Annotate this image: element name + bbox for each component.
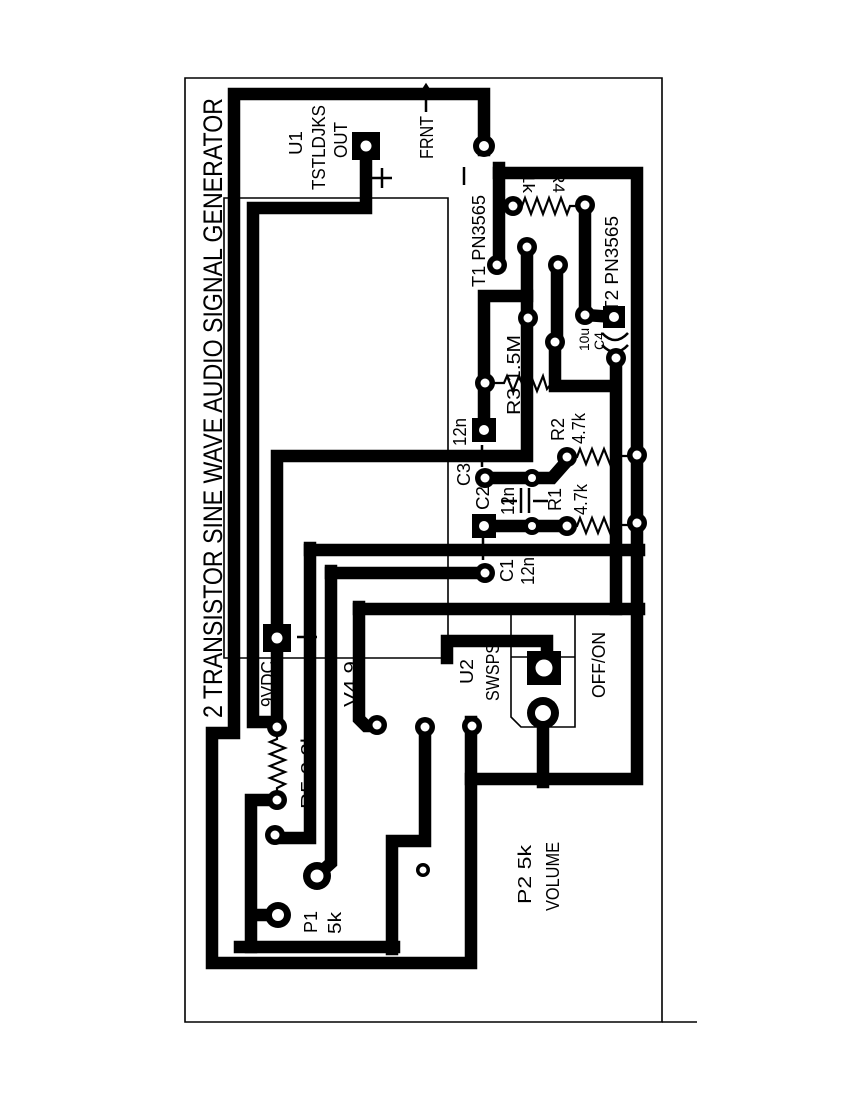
pad-switch-hole (536, 660, 553, 677)
label-c1: C1 (497, 559, 517, 582)
t1-collector-trace (499, 168, 509, 265)
silkscreen-labels: 2 TRANSISTOR SINE WAVE AUDIO SIGNAL GENE… (198, 98, 622, 934)
label-12n: 12n (450, 418, 470, 446)
label-12n: 12n (498, 487, 518, 515)
pad-r3-right-hole (551, 338, 560, 347)
pad-rail-r1-hole (633, 519, 642, 528)
pad-c2-hole (479, 521, 489, 531)
label-r3-1-5m: R3 1.5M (504, 335, 524, 415)
label-5k: 5k (325, 911, 345, 934)
label-4-7k: 4.7k (571, 483, 591, 515)
label-r5-2-2k: R5 2.2k (298, 731, 318, 809)
pad-c3-mid-hole (528, 474, 536, 482)
pad-c3-hole (479, 425, 489, 435)
label-t1-pn3565: T1 PN3565 (469, 195, 489, 287)
label-out: OUT (331, 122, 351, 158)
label-volume: VOLUME (543, 842, 563, 911)
pad-r5-top-hole (273, 723, 282, 732)
pad-c4-hole (612, 354, 621, 363)
pad-t1-c-hole (493, 261, 502, 270)
label-v4-9: V4.9 (341, 661, 361, 707)
board-title: 2 TRANSISTOR SINE WAVE AUDIO SIGNAL GENE… (198, 98, 228, 718)
resistor-r5 (270, 730, 285, 797)
pad-377-hole (373, 721, 382, 730)
p1-pin-riser (317, 571, 331, 877)
pad-p1-wiper-hole (271, 831, 280, 840)
pad-p1-b-hole (311, 870, 324, 883)
pad-r5-bot-hole (273, 796, 282, 805)
pad-frnt-hole (479, 141, 489, 151)
pcb-layout-page: 2 TRANSISTOR SINE WAVE AUDIO SIGNAL GENE… (0, 0, 850, 1100)
label-1k: 1k (519, 173, 538, 194)
pad-c3-round-hole (481, 474, 490, 483)
pad-r3-left-hole (481, 379, 490, 388)
pad-r4-t2-hole (581, 201, 590, 210)
label-r1: R1 (545, 488, 565, 511)
pad-t2-b-hole (554, 261, 563, 270)
pad-rail-r2-hole (633, 451, 642, 460)
pad-t2-c-hole (581, 311, 590, 320)
label-frnt: FRNT (417, 116, 437, 159)
pad-472-hole (468, 722, 477, 731)
label-4-7k: 4.7k (569, 412, 589, 444)
pad-t2-e-hole (609, 312, 619, 322)
pcb-svg: 2 TRANSISTOR SINE WAVE AUDIO SIGNAL GENE… (0, 0, 850, 1100)
label-u1: U1 (286, 131, 306, 155)
label-tstldjks: TSTLDJKS (309, 105, 329, 190)
label-swsps: SWSPS (483, 643, 503, 701)
plus-mark-c1 (472, 538, 494, 560)
label-r2: R2 (548, 418, 568, 441)
label-c3: C3 (454, 463, 474, 486)
label-r4: R4 (549, 171, 568, 193)
pad-r4-left-hole (509, 202, 518, 211)
pad-t1-e-hole (524, 314, 533, 323)
label-10u: 10u (576, 328, 592, 351)
pad-r2-left-hole (563, 453, 572, 462)
label-12n: 12n (518, 557, 538, 585)
label-c4: C4 (591, 332, 607, 350)
label-p1: P1 (301, 911, 321, 933)
pad-r1-left-hole (563, 522, 572, 531)
pad-lone-hole (420, 867, 427, 874)
pad-p2-wiper-hole (535, 705, 551, 721)
pad-t1-b-hole (523, 243, 532, 252)
label-p2-5k: P2 5k (515, 844, 535, 904)
pad-c2-mid-hole (528, 522, 536, 530)
label-t2-pn3565: T2 PN3565 (602, 216, 622, 312)
label-off-on: OFF/ON (589, 632, 609, 698)
pad-c1-hole (481, 569, 490, 578)
pad-9vdc-hole (272, 633, 283, 644)
pad-425-hole (421, 723, 430, 732)
pad-riser-359 (359, 607, 378, 726)
label-u2: U2 (457, 659, 477, 684)
plus-mark-out (372, 168, 392, 188)
label-c2: C2 (473, 486, 493, 510)
label-9vdc: 9VDC (258, 661, 278, 707)
pad-p1-a-hole (272, 909, 284, 921)
plus-mark-c3 (471, 445, 493, 467)
pad-u1-out-hole (361, 141, 372, 152)
